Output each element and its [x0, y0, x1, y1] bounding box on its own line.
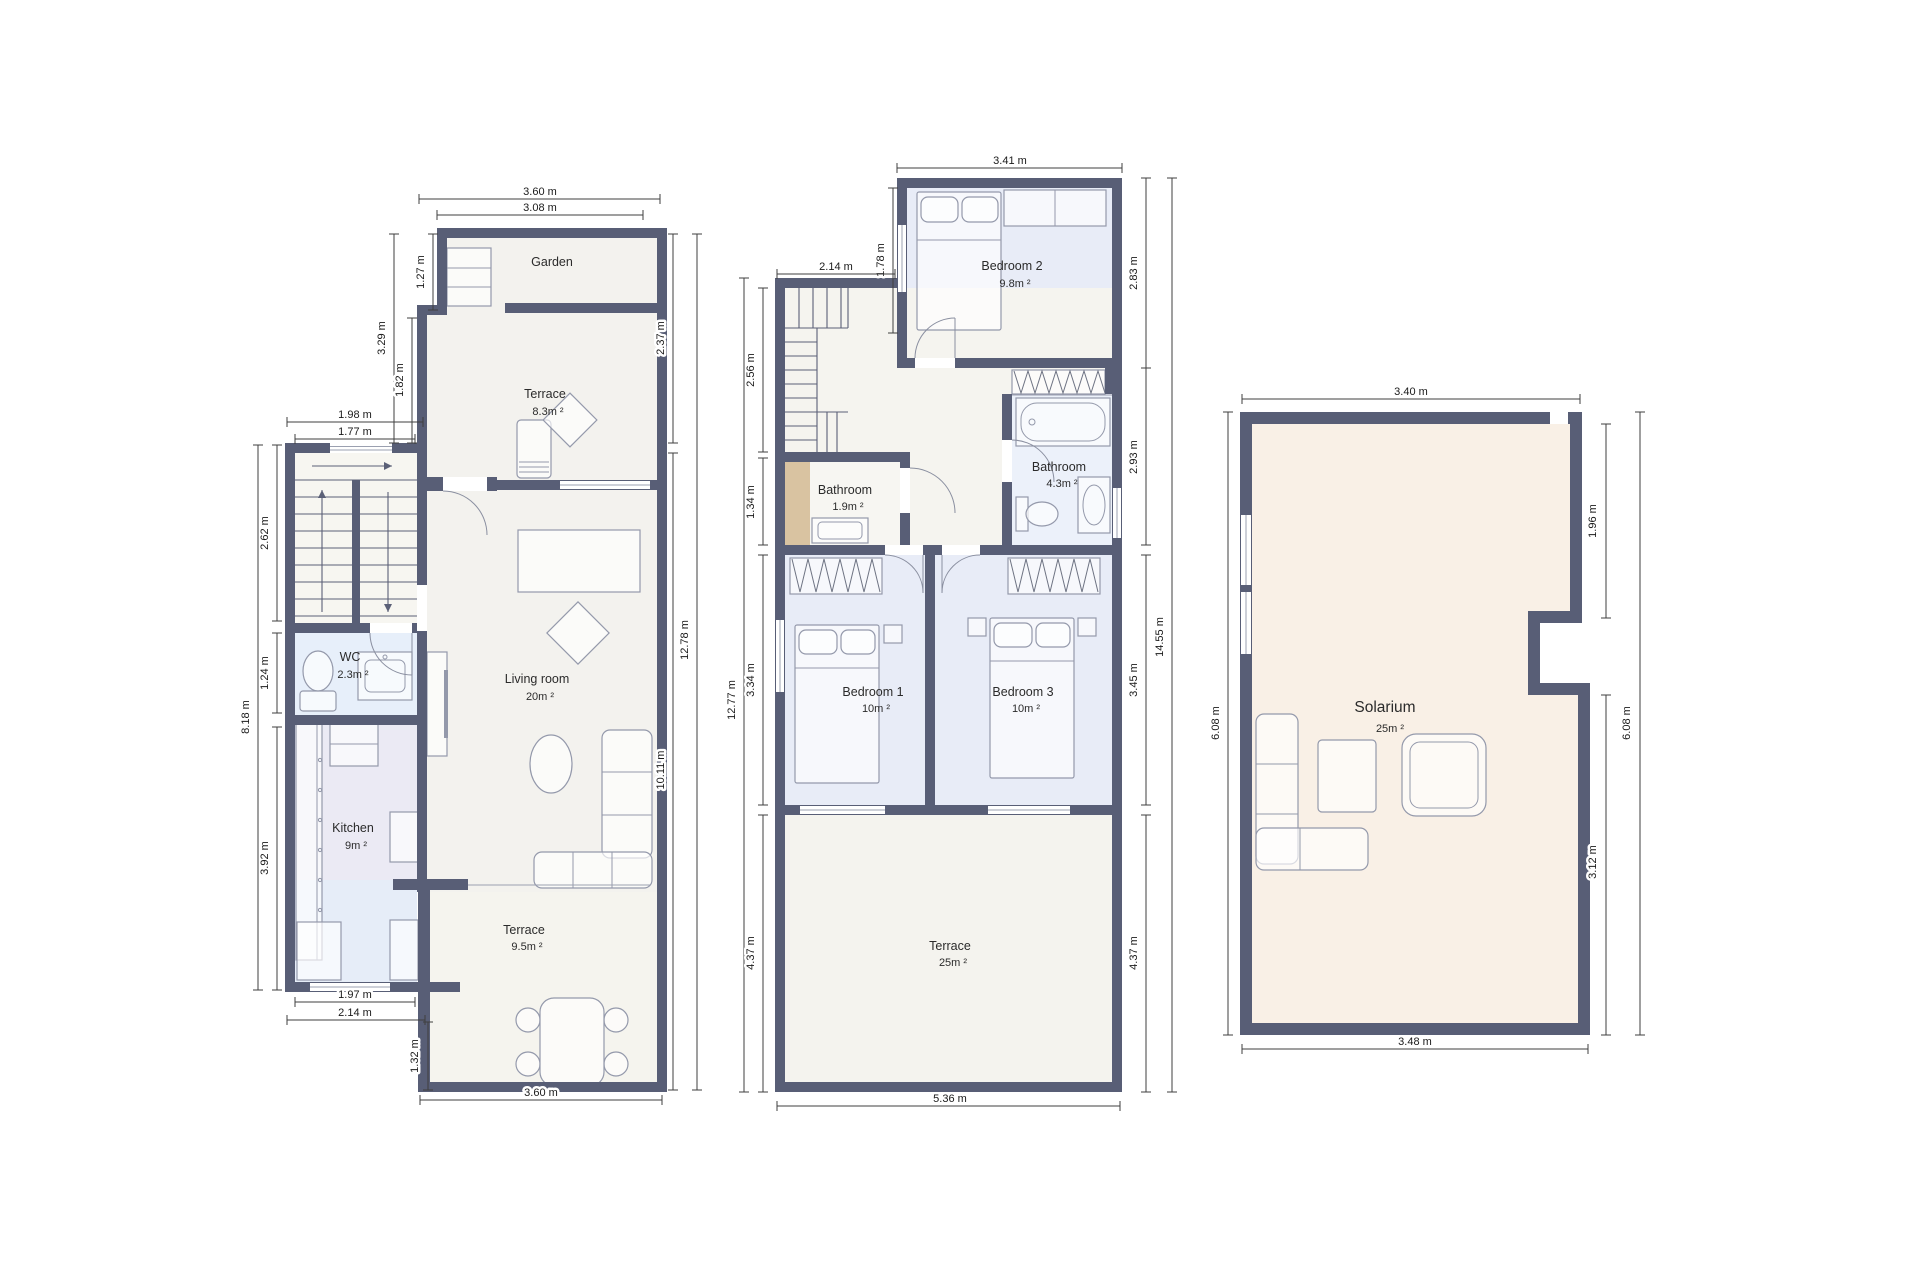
svg-text:3.45 m: 3.45 m — [1128, 663, 1140, 697]
bathroom-small-fixtures — [812, 518, 868, 543]
label-bathroom-area: 4.3m ² — [1046, 478, 1078, 490]
svg-text:2.14 m: 2.14 m — [819, 261, 853, 273]
svg-text:3.08 m: 3.08 m — [523, 202, 557, 214]
svg-text:2.83 m: 2.83 m — [1128, 256, 1140, 290]
svg-text:1.97 m: 1.97 m — [338, 989, 372, 1001]
label-living-area: 20m ² — [526, 691, 554, 703]
svg-text:4.37 m: 4.37 m — [745, 936, 757, 970]
svg-text:1.27 m: 1.27 m — [415, 255, 427, 289]
bath-closet-fill — [785, 462, 810, 545]
svg-text:6.08 m: 6.08 m — [1621, 706, 1633, 740]
label-wc-area: 2.3m ² — [337, 669, 369, 681]
svg-text:3.34 m: 3.34 m — [745, 663, 757, 697]
svg-text:1.34 m: 1.34 m — [745, 485, 757, 519]
svg-text:1.96 m: 1.96 m — [1587, 504, 1599, 538]
label-bathroom-small-area: 1.9m ² — [832, 501, 864, 513]
svg-text:1.32 m: 1.32 m — [409, 1039, 421, 1073]
room-solarium-fill — [1252, 424, 1578, 1023]
svg-text:2.62 m: 2.62 m — [259, 516, 271, 550]
label-terrace-top-area: 8.3m ² — [532, 406, 564, 418]
label-solarium-area: 25m ² — [1376, 723, 1404, 735]
label-bedroom2-area: 9.8m ² — [999, 278, 1031, 290]
svg-text:3.12 m: 3.12 m — [1587, 845, 1599, 879]
terrace-lounger — [517, 420, 551, 478]
svg-text:12.78 m: 12.78 m — [679, 620, 691, 660]
svg-text:2.93 m: 2.93 m — [1128, 440, 1140, 474]
label-terrace-first-area: 25m ² — [939, 957, 967, 969]
label-terrace-top: Terrace — [524, 387, 566, 401]
svg-text:5.36 m: 5.36 m — [933, 1093, 967, 1105]
svg-text:8.18 m: 8.18 m — [240, 700, 252, 734]
svg-text:3.92 m: 3.92 m — [259, 841, 271, 875]
label-kitchen: Kitchen — [332, 821, 374, 835]
svg-text:2.56 m: 2.56 m — [745, 353, 757, 387]
label-living: Living room — [505, 672, 570, 686]
svg-text:12.77 m: 12.77 m — [726, 680, 738, 720]
svg-text:3.29 m: 3.29 m — [376, 321, 388, 355]
svg-text:2.37 m: 2.37 m — [655, 321, 667, 355]
label-bedroom1: Bedroom 1 — [842, 685, 903, 699]
svg-text:1.78 m: 1.78 m — [875, 243, 887, 277]
svg-text:14.55 m: 14.55 m — [1154, 617, 1166, 657]
label-bedroom2: Bedroom 2 — [981, 259, 1042, 273]
svg-text:1.82 m: 1.82 m — [394, 363, 406, 397]
label-garden: Garden — [531, 255, 573, 269]
label-bathroom: Bathroom — [1032, 460, 1086, 474]
label-bedroom3-area: 10m ² — [1012, 703, 1040, 715]
label-bedroom3: Bedroom 3 — [992, 685, 1053, 699]
garden-steps — [447, 248, 491, 306]
svg-text:3.40 m: 3.40 m — [1394, 386, 1428, 398]
svg-text:3.60 m: 3.60 m — [523, 186, 557, 198]
label-kitchen-area: 9m ² — [345, 840, 367, 852]
svg-text:1.24 m: 1.24 m — [259, 656, 271, 690]
svg-text:1.98 m: 1.98 m — [338, 409, 372, 421]
label-bedroom1-area: 10m ² — [862, 703, 890, 715]
svg-text:6.08 m: 6.08 m — [1210, 706, 1222, 740]
label-solarium: Solarium — [1354, 699, 1415, 716]
label-bathroom-small: Bathroom — [818, 483, 872, 497]
svg-text:3.41 m: 3.41 m — [993, 155, 1027, 167]
label-terrace-first: Terrace — [929, 939, 971, 953]
svg-text:4.37 m: 4.37 m — [1128, 936, 1140, 970]
label-terrace-bottom: Terrace — [503, 923, 545, 937]
svg-text:3.60 m: 3.60 m — [524, 1087, 558, 1099]
ground-floor-plan: Garden Terrace 8.3m ² WC 2.3m ² Living r… — [240, 186, 702, 1105]
label-wc: WC — [340, 650, 361, 664]
svg-text:2.14 m: 2.14 m — [338, 1007, 372, 1019]
svg-text:1.77 m: 1.77 m — [338, 426, 372, 438]
hall-wardrobe — [1012, 370, 1105, 394]
svg-text:10.11 m: 10.11 m — [655, 751, 667, 790]
svg-text:3.48 m: 3.48 m — [1398, 1036, 1432, 1048]
first-floor-plan: Bedroom 2 9.8m ² Bathroom 1.9m ² Bathroo… — [726, 155, 1177, 1111]
solarium-plan: Solarium 25m ² 3.40 m 1.96 m 6.08 m 3.12… — [1210, 386, 1645, 1054]
floorplan-canvas: Garden Terrace 8.3m ² WC 2.3m ² Living r… — [0, 0, 1920, 1280]
floorplan-drawing: Garden Terrace 8.3m ² WC 2.3m ² Living r… — [0, 0, 1920, 1280]
label-terrace-bottom-area: 9.5m ² — [511, 941, 543, 953]
